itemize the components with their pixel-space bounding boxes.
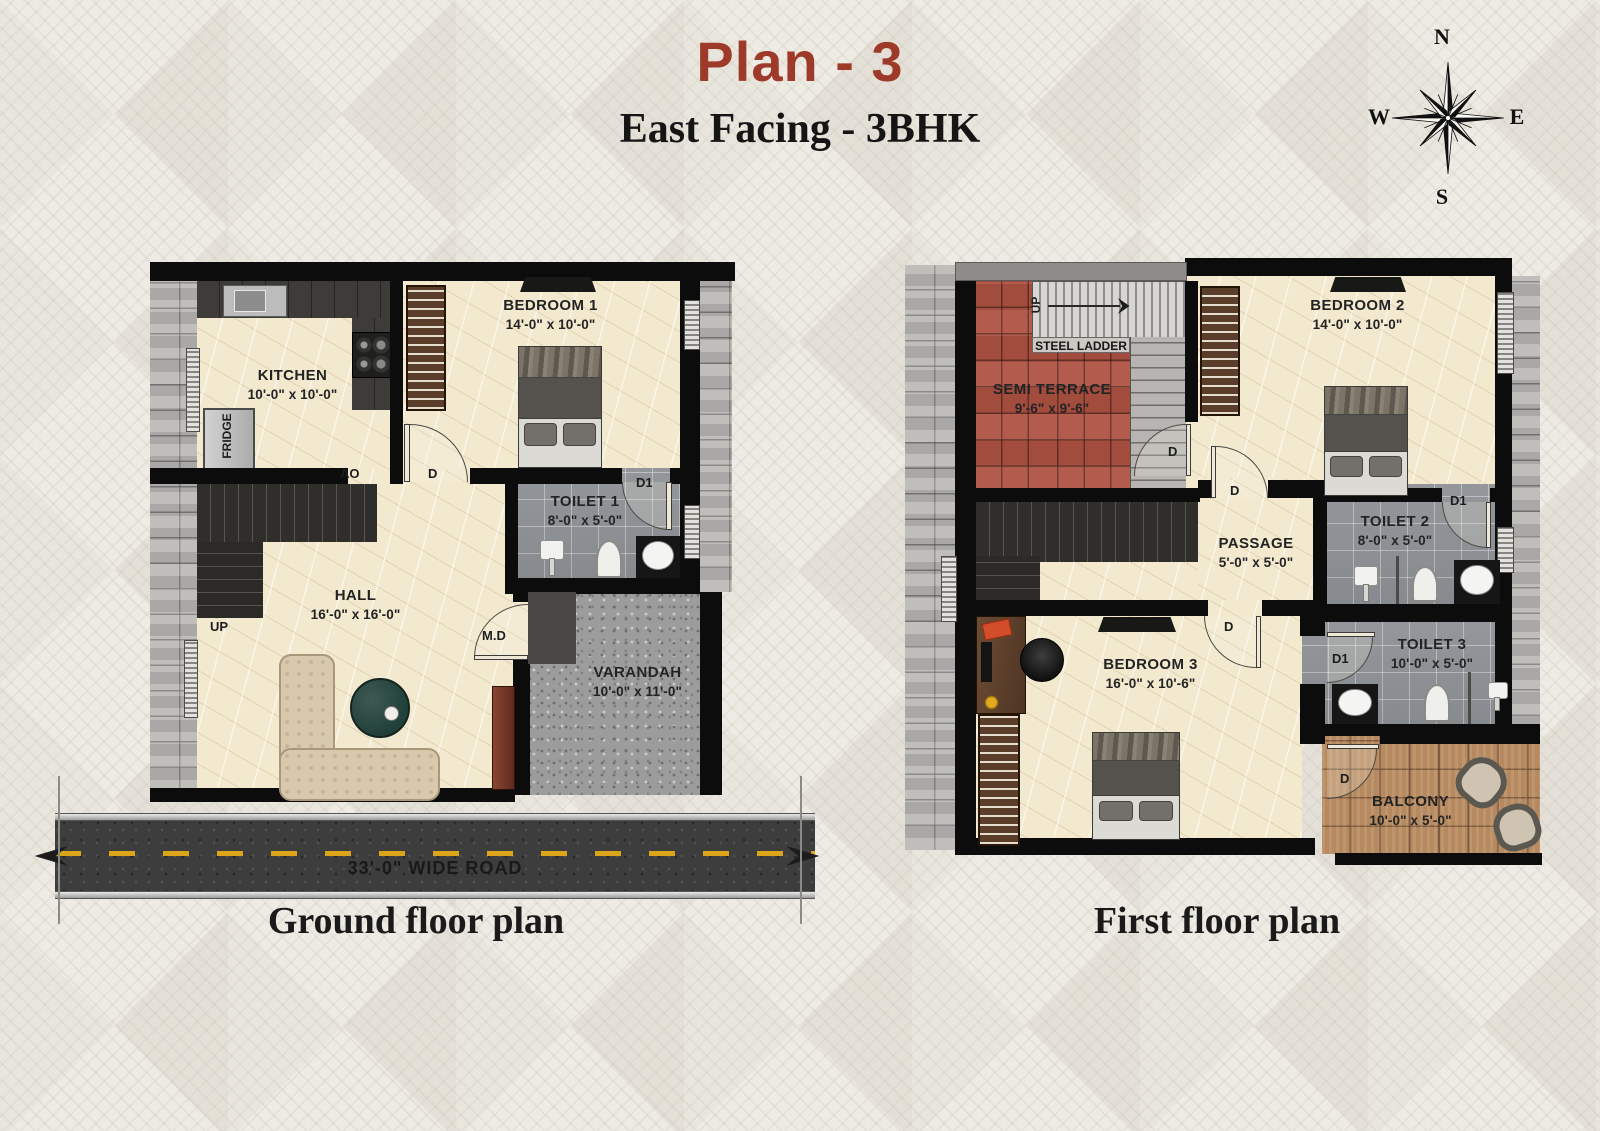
road-curb [55,891,815,899]
room-size: 8'-0" x 5'-0" [520,512,650,530]
door-label: D [1224,620,1242,633]
wardrobe [978,714,1020,846]
staircase-landing [197,484,377,542]
up-label: UP [210,620,250,633]
stairwell [976,502,1198,562]
wall [955,600,1198,616]
bed [518,346,602,468]
door-label: D [1340,772,1358,785]
wall [1268,480,1327,498]
toilet3-label: TOILET 3 10'-0" x 5'-0" [1352,635,1512,673]
room-size: 10'-0" x 11'-0" [555,683,720,701]
wall [150,468,348,484]
room-name: BEDROOM 1 [468,296,633,316]
door-label: D [1230,484,1248,497]
main-door-label: M.D [482,629,526,642]
washbasin-icon [1454,560,1500,604]
staircase-run [197,542,263,618]
stair-landing-floor [1040,556,1198,604]
semi-terrace-label: SEMI TERRACE 9'-6" x 9'-6" [972,380,1132,418]
shower-icon [1354,566,1378,586]
wall [513,658,530,795]
compass-star-icon [1390,54,1506,182]
coffee-table [350,678,410,738]
wall [1185,281,1198,422]
door-label: D1 [636,476,662,489]
door-leaf [666,482,672,530]
wall [1380,736,1540,744]
toilet-icon [596,540,622,578]
wall [1335,853,1542,865]
wall [1300,616,1325,636]
cup [384,706,399,721]
washbasin-icon [1332,684,1378,724]
wall [1313,604,1512,622]
compass-north-label: N [1430,26,1454,48]
door-label: D1 [1332,652,1358,665]
up-label: UP [1030,285,1042,325]
door-label: D [1168,445,1186,458]
shower-stem [1494,697,1500,711]
door-leaf [1256,616,1261,668]
wall [1185,258,1512,276]
page-title: Plan - 3 [600,34,1000,90]
toilet-icon [1424,684,1450,722]
tv-icon [1330,277,1406,292]
wall [955,488,1200,502]
window [684,300,700,350]
room-size: 14'-0" x 10'-0" [1275,316,1440,334]
room-size: 16'-0" x 10'-6" [1068,675,1233,693]
room-size: 10'-0" x 10'-0" [210,386,375,404]
door-label: D [428,467,446,480]
door-label: D1 [1450,494,1476,507]
toilet-icon [1412,566,1438,602]
tv-icon [1098,617,1176,632]
wall [955,281,976,843]
road-centerline [55,851,815,856]
bedroom1-label: BEDROOM 1 14'-0" x 10'-0" [468,296,633,334]
room-name: BEDROOM 3 [1068,655,1233,675]
room-name: KITCHEN [210,366,375,386]
ladder-arrow-line [1048,305,1120,307]
sofa [279,748,440,801]
ground-floor-caption: Ground floor plan [166,902,666,940]
bed [1324,386,1408,496]
washbasin-icon [636,536,680,578]
tv-icon [520,277,596,292]
door-leaf [1186,424,1191,476]
fridge-label: FRIDGE [221,406,233,466]
room-size: 5'-0" x 5'-0" [1196,554,1316,572]
window [684,505,700,559]
varandah-block [528,592,576,664]
shower-icon [540,540,564,560]
shower-stem [1363,584,1369,602]
wall [1313,724,1540,736]
stone-wall [700,281,732,592]
compass-west-label: W [1368,106,1390,128]
wall [470,468,622,484]
plant-icon [983,694,1000,711]
balcony-label: BALCONY 10'-0" x 5'-0" [1338,792,1483,830]
bed [1092,732,1180,840]
office-chair [1020,638,1064,682]
parapet-wall [955,262,1187,281]
wall [150,262,735,281]
floor-plan-sheet: Plan - 3 East Facing - 3BHK N W E S [0,0,1600,1131]
room-size: 8'-0" x 5'-0" [1325,532,1465,550]
compass-south-label: S [1431,186,1453,208]
monitor-icon [981,642,992,682]
window [186,348,200,432]
shower-stem [549,558,555,576]
boundary-line [58,776,60,924]
varandah-label: VARANDAH 10'-0" x 11'-0" [555,663,720,701]
room-name: VARANDAH [555,663,720,683]
page-subtitle: East Facing - 3BHK [560,108,1040,150]
door-leaf [474,655,528,660]
room-name: TOILET 2 [1325,512,1465,532]
kitchen-label: KITCHEN 10'-0" x 10'-0" [210,366,375,404]
room-size: 16'-0" x 16'-0" [283,606,428,624]
first-floor-caption: First floor plan [967,902,1467,940]
room-size: 10'-0" x 5'-0" [1338,812,1483,830]
toilet2-label: TOILET 2 8'-0" x 5'-0" [1325,512,1465,550]
sink-icon [223,285,287,317]
hall-label: HALL 16'-0" x 16'-0" [283,586,428,624]
bedroom2-label: BEDROOM 2 14'-0" x 10'-0" [1275,296,1440,334]
compass-rose: N W E S [1368,26,1528,206]
room-size: 10'-0" x 5'-0" [1352,655,1512,673]
bedroom3-label: BEDROOM 3 16'-0" x 10'-6" [1068,655,1233,693]
room-size: 9'-6" x 9'-6" [972,400,1132,418]
wall [1198,600,1208,616]
road-curb [55,813,815,821]
steel-ladder [1032,281,1187,339]
room-name: TOILET 1 [520,492,650,512]
steel-ladder-label: STEEL LADDER [1032,337,1130,353]
passage-label: PASSAGE 5'-0" x 5'-0" [1196,534,1316,572]
wardrobe [1200,286,1240,416]
wall [1313,736,1325,744]
stone-wall [1512,276,1540,740]
compass-east-label: E [1506,106,1528,128]
window [941,556,957,622]
partition [1396,556,1399,604]
toilet1-label: TOILET 1 8'-0" x 5'-0" [520,492,650,530]
opening-label: AO [340,467,370,480]
window [1497,292,1514,374]
window [184,640,198,718]
partition [1468,672,1471,724]
room-name: BEDROOM 2 [1275,296,1440,316]
room-name: BALCONY [1338,792,1483,812]
wall [390,281,403,484]
room-name: TOILET 3 [1352,635,1512,655]
room-name: SEMI TERRACE [972,380,1132,400]
room-name: HALL [283,586,428,606]
main-door-leaf [492,686,515,790]
road-label: 33'-0" WIDE ROAD [285,859,585,877]
room-size: 14'-0" x 10'-0" [468,316,633,334]
wall [1262,600,1313,616]
door-leaf [1486,502,1491,548]
room-name: PASSAGE [1196,534,1316,554]
boundary-line [800,776,802,924]
wardrobe [406,285,446,411]
